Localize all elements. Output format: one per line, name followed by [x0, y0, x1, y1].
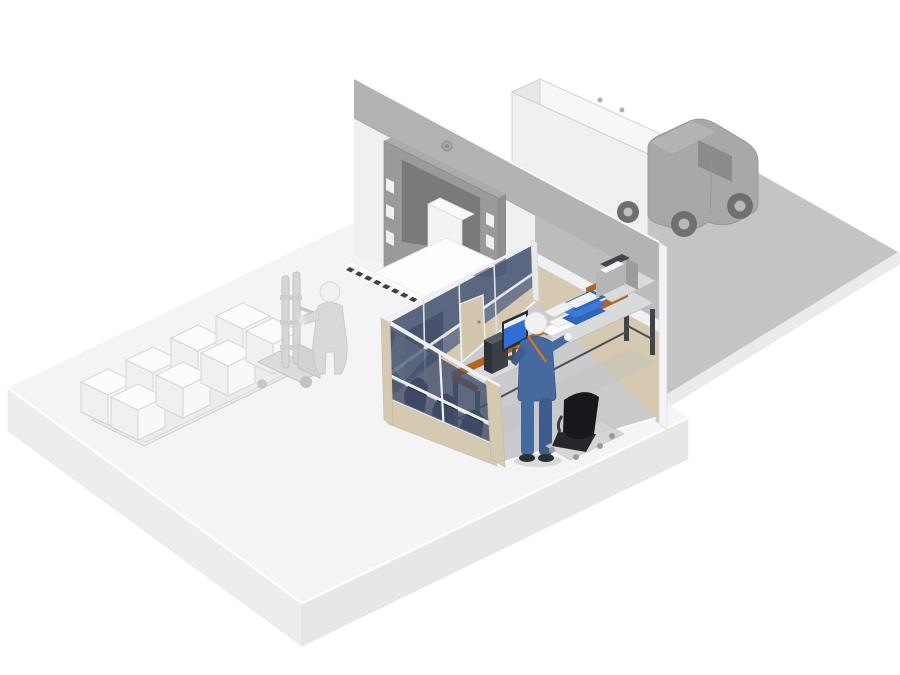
operator-head	[320, 282, 340, 302]
worker-head	[525, 312, 547, 334]
trailer-wheel-hub	[624, 208, 633, 217]
chair-caster	[609, 433, 615, 439]
trailer-roof-vent	[598, 98, 603, 103]
warehouse-illustration	[0, 0, 900, 675]
worker-foot	[538, 454, 554, 462]
chair-caster	[549, 447, 555, 453]
desk-leg	[650, 309, 655, 355]
stacker-crossbar	[280, 295, 302, 300]
chair-caster	[573, 454, 579, 460]
cab-wheel-hub	[679, 219, 690, 230]
chair-backrest	[563, 392, 599, 439]
pc-tower-side	[484, 340, 492, 374]
trailer-roof-vent	[620, 108, 625, 113]
stacker-wheel	[300, 376, 312, 388]
door-handle-icon	[478, 321, 481, 324]
dock-lamp-center	[445, 144, 449, 148]
worker-foot	[519, 454, 535, 462]
chair-caster	[597, 443, 603, 449]
operator-hand	[298, 316, 306, 324]
wall-endcap	[659, 242, 667, 430]
worker-hand	[564, 333, 572, 341]
stacker-wheel	[257, 379, 267, 389]
worker-leg	[521, 398, 534, 456]
cab-wheel-hub	[735, 201, 746, 212]
